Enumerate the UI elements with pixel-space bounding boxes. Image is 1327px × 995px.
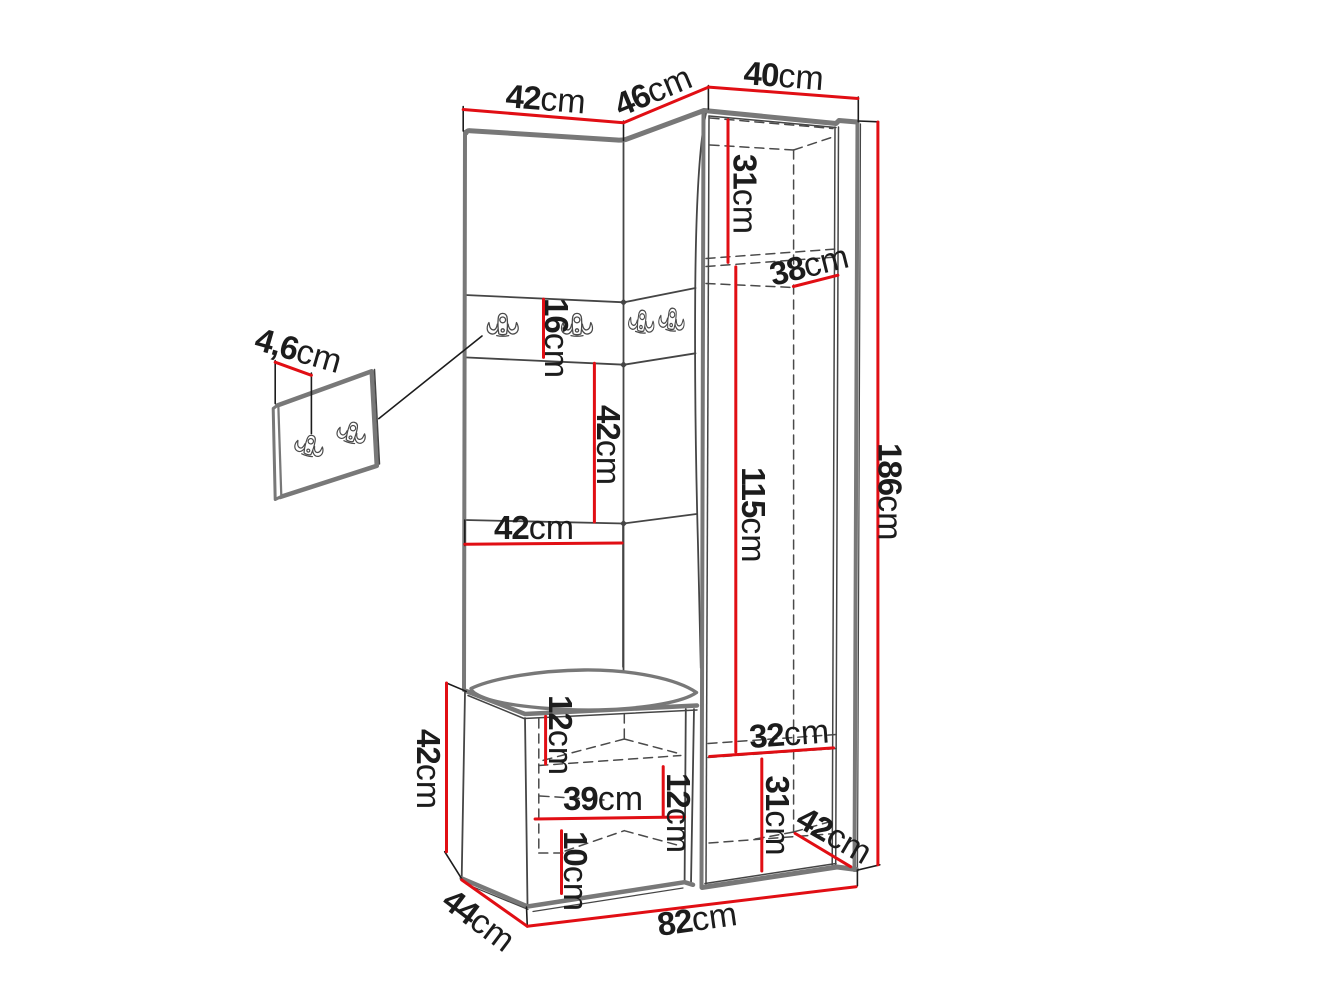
svg-text:39cm: 39cm <box>563 780 643 818</box>
svg-text:12cm: 12cm <box>659 773 697 853</box>
svg-text:42cm: 42cm <box>589 405 627 485</box>
svg-text:42cm: 42cm <box>790 799 878 872</box>
svg-text:186cm: 186cm <box>871 443 909 540</box>
svg-text:42cm: 42cm <box>494 509 574 547</box>
svg-text:12cm: 12cm <box>541 695 579 775</box>
svg-text:10cm: 10cm <box>556 831 594 911</box>
svg-text:42cm: 42cm <box>409 729 447 809</box>
svg-text:32cm: 32cm <box>748 712 831 755</box>
svg-text:16cm: 16cm <box>537 298 575 378</box>
svg-text:42cm: 42cm <box>504 77 587 121</box>
svg-text:115cm: 115cm <box>734 467 772 563</box>
svg-text:31cm: 31cm <box>726 154 764 234</box>
svg-text:40cm: 40cm <box>742 54 825 98</box>
svg-text:38cm: 38cm <box>766 238 853 294</box>
svg-text:31cm: 31cm <box>758 776 796 856</box>
svg-text:46cm: 46cm <box>609 58 698 124</box>
svg-text:82cm: 82cm <box>655 895 740 944</box>
